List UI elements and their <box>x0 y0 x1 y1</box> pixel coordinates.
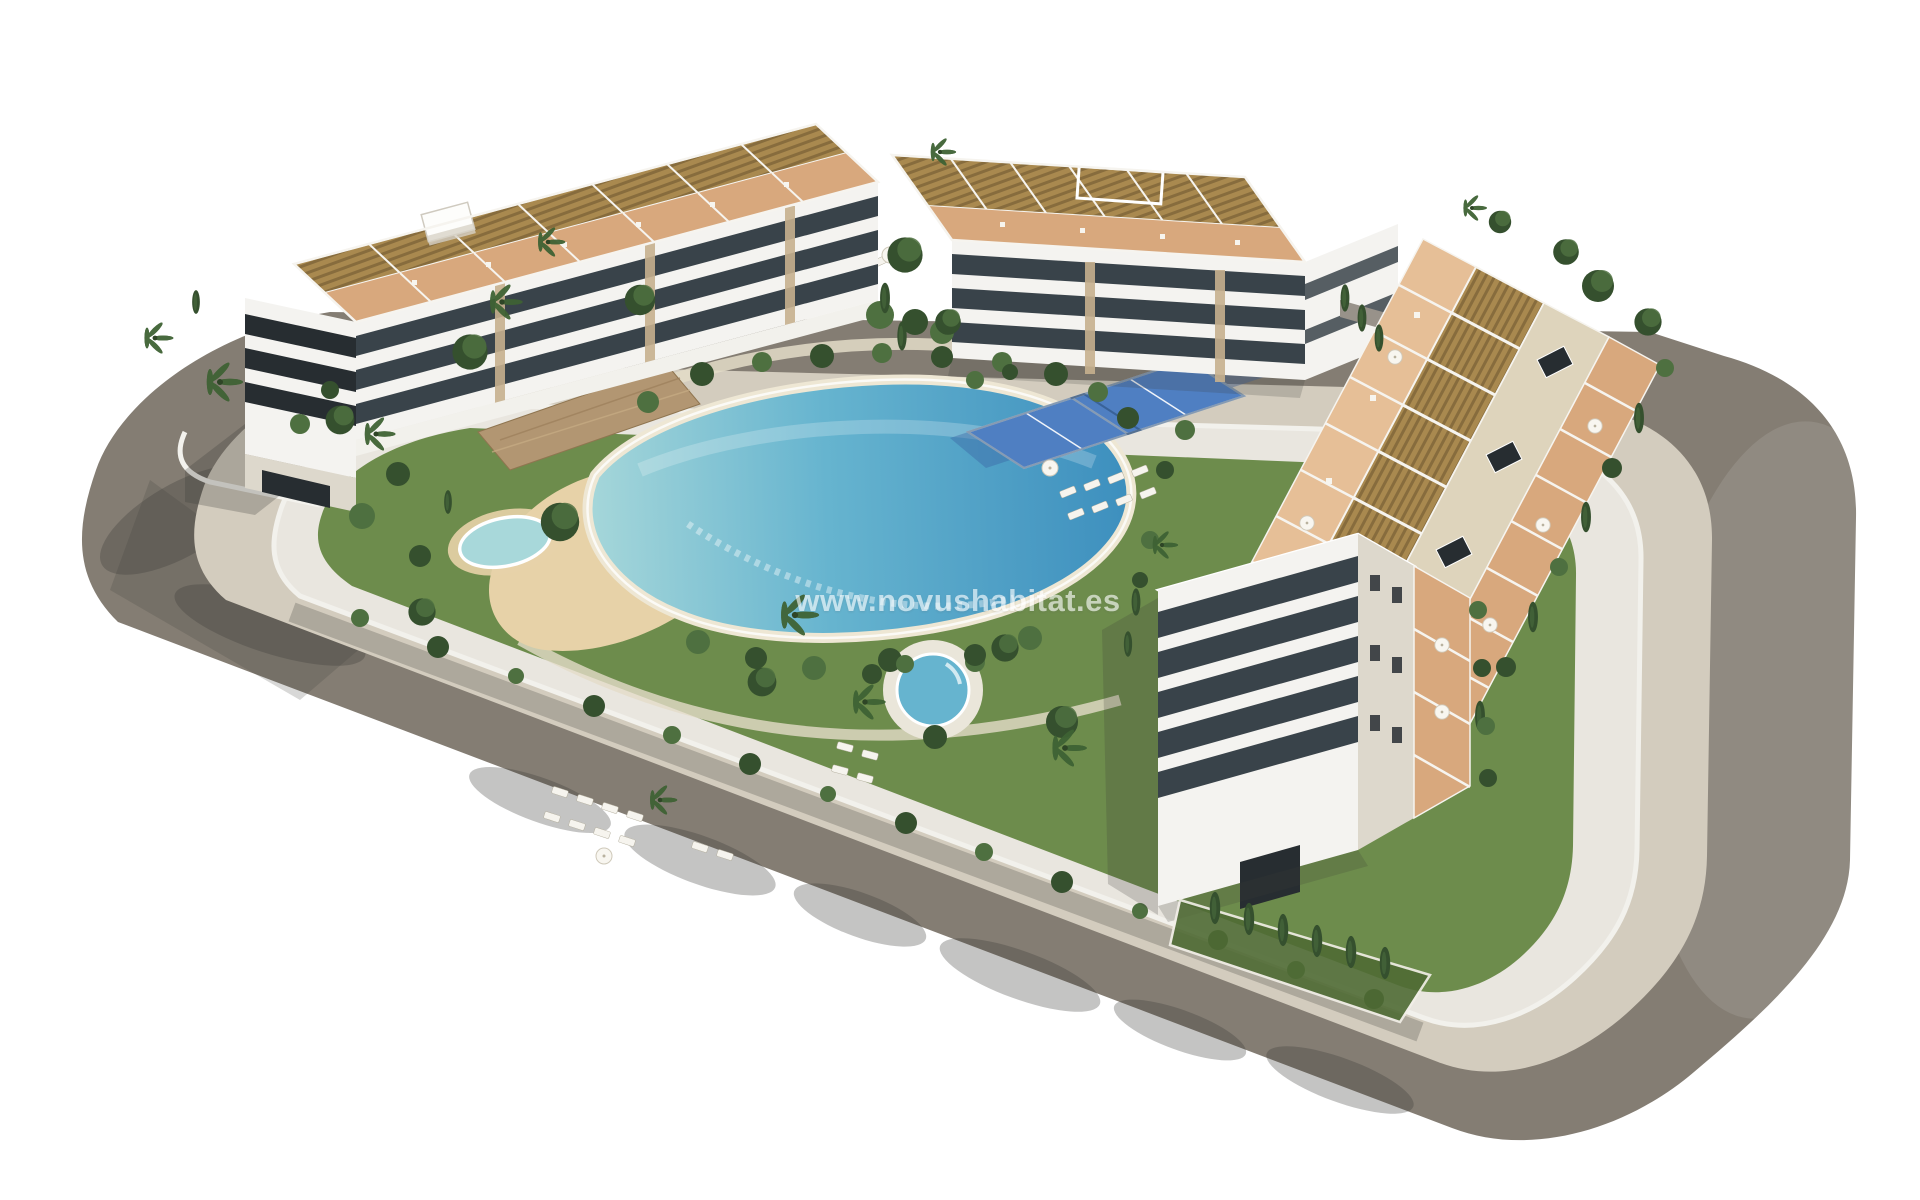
property-aerial-render: www.novushabitat.es <box>0 0 1920 1200</box>
tower-end-wall <box>1358 534 1414 850</box>
tower-east-terraces <box>1414 566 1470 818</box>
site-render-canvas <box>0 0 1920 1200</box>
